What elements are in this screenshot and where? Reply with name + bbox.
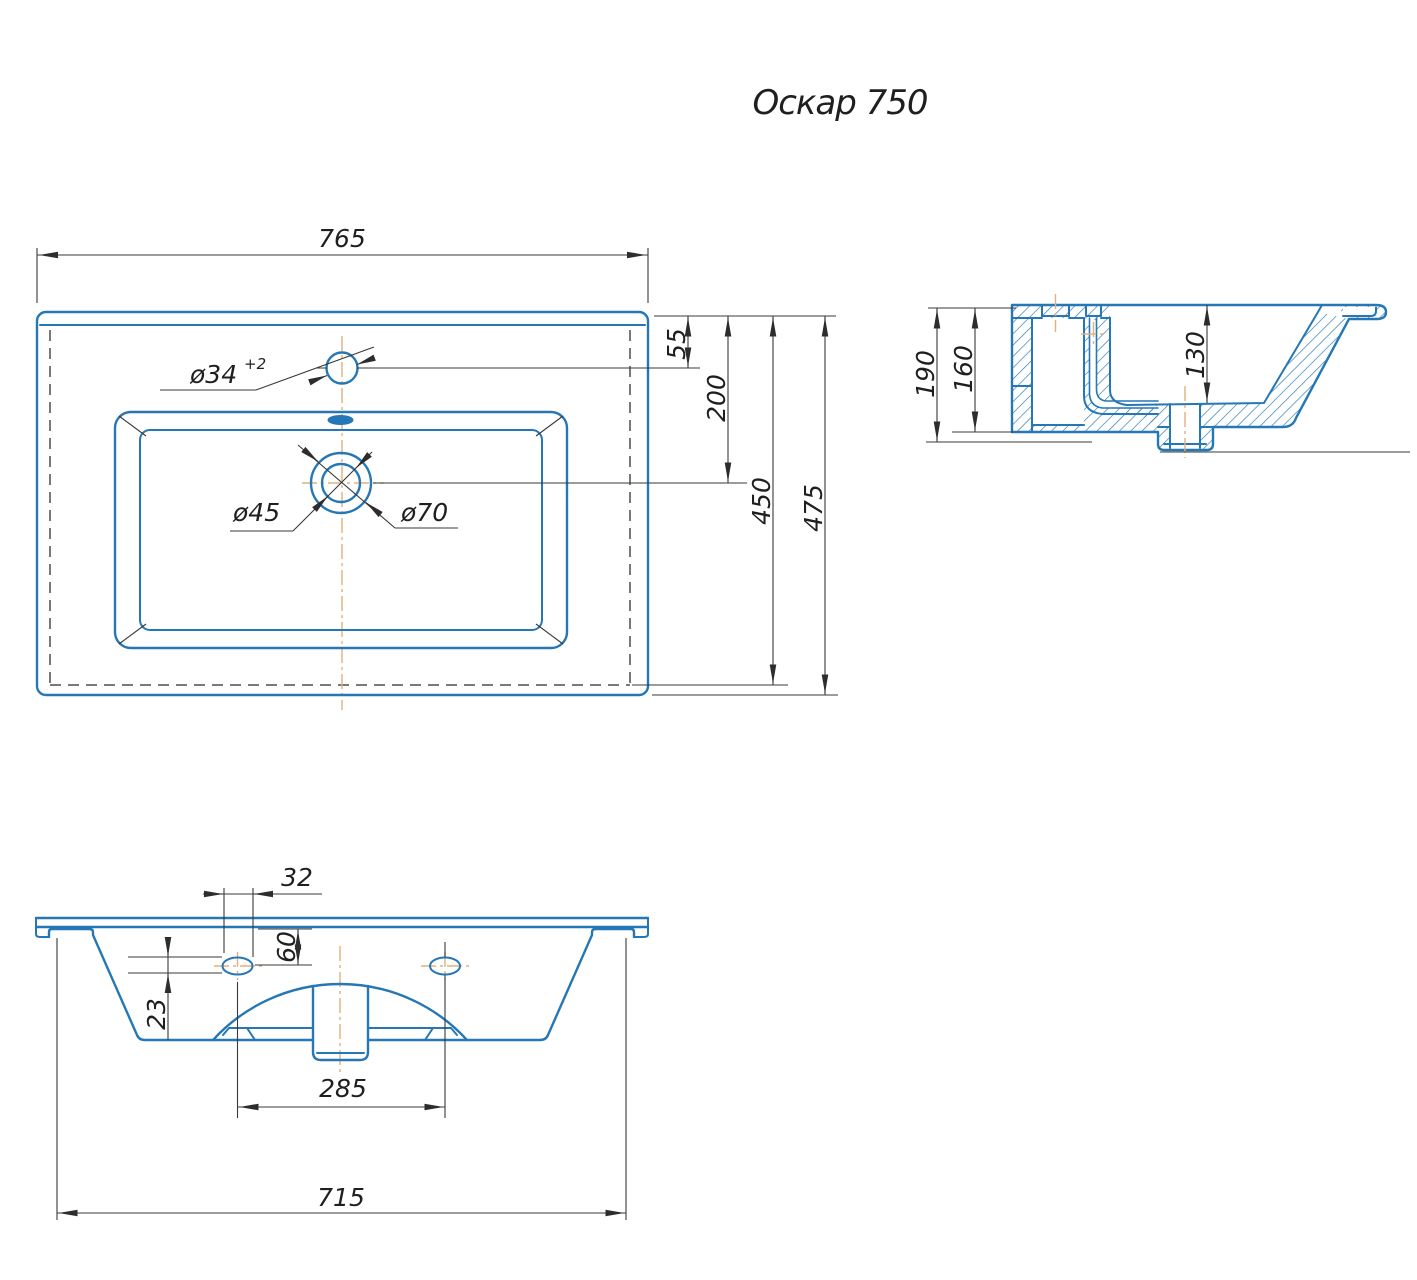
plan-view: 765 55 200 450 475 ø34 +2 ø45 ø70: [37, 224, 838, 710]
dim-32-label: 32: [281, 863, 313, 892]
plan-extension-lines: [37, 248, 838, 695]
basin-inner-outline: [140, 430, 542, 630]
page-title: Оскар 750: [752, 83, 927, 123]
bottom-view: 32 60 23 285 715: [36, 863, 648, 1220]
dim-130-label: 130: [1181, 331, 1210, 379]
basin-chamfer-lines: [119, 416, 563, 644]
drain-dia-45-label: ø45: [232, 498, 280, 527]
dim-450-label: 450: [747, 477, 776, 525]
dim-190-label: 190: [911, 350, 940, 398]
bottom-top-edge: [36, 918, 648, 927]
drain-box: [313, 986, 368, 1060]
faucet-dia-tolerance: +2: [244, 355, 266, 373]
bottom-right-profile: [368, 929, 634, 1040]
dim-765-label: 765: [318, 224, 366, 253]
dim-715-label: 715: [317, 1183, 365, 1212]
dim-475-label: 475: [799, 484, 828, 532]
dim-200-label: 200: [702, 374, 731, 422]
section-view: 190 160 130: [911, 294, 1410, 458]
dim-60-label: 60: [272, 931, 301, 963]
drawing-sheet: 765 55 200 450 475 ø34 +2 ø45 ø70: [0, 0, 1417, 1280]
dim-285-label: 285: [319, 1074, 367, 1103]
dim-55-label: 55: [662, 328, 691, 360]
dim-23-label: 23: [142, 998, 171, 1030]
technical-drawing: 765 55 200 450 475 ø34 +2 ø45 ø70: [0, 0, 1417, 1280]
overflow-slot: [328, 416, 353, 425]
faucet-dia-label: ø34: [189, 360, 237, 389]
basin-outline: [115, 412, 567, 648]
drain-dia-70-label: ø70: [400, 498, 448, 527]
dim-160-label: 160: [949, 345, 978, 393]
